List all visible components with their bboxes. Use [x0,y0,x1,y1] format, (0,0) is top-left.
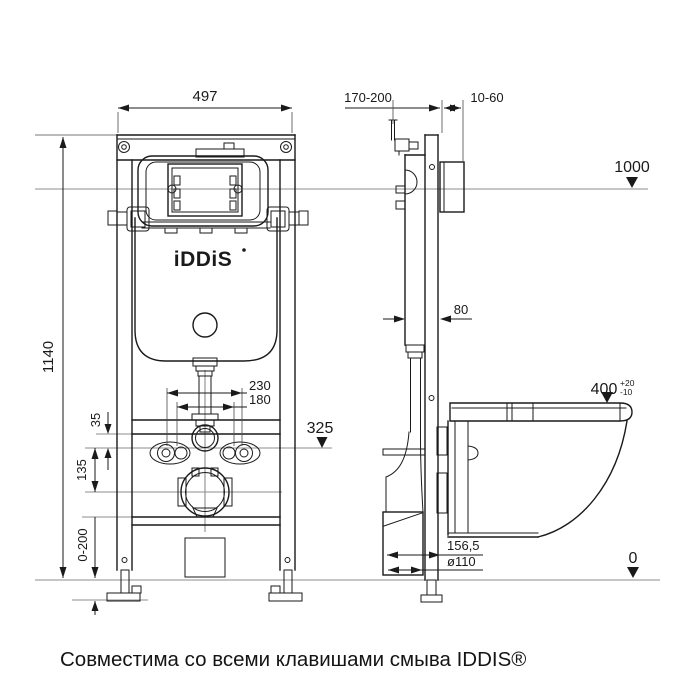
dim-profile-depth: 80 [383,302,472,323]
dim-drain-pipe-diameter: ø110 [388,554,483,574]
front-view: iDDiS [107,135,308,601]
toilet-bowl [448,403,632,537]
dim-bolt-spacing: 230 180 [167,378,271,446]
svg-text:35: 35 [88,413,103,427]
svg-text:-10: -10 [620,387,633,397]
svg-text:1140: 1140 [40,341,57,373]
dim-floor-level: 0 [627,550,639,578]
svg-text:0: 0 [629,550,638,567]
svg-text:497: 497 [192,88,217,105]
svg-text:135: 135 [74,459,89,481]
dim-front-width: 497 [118,88,292,133]
svg-text:0-200: 0-200 [75,528,90,561]
svg-text:156,5: 156,5 [447,538,480,553]
product-installation-diagram: iDDiS [0,0,700,700]
iddis-logo: iDDiS [174,248,233,271]
dimensions: 497 1140 230 180 [35,88,650,615]
technical-drawing: iDDiS [0,0,700,700]
svg-text:230: 230 [249,378,271,393]
side-cistern [396,155,435,438]
dim-depth-adjust: 170-200 [344,90,440,124]
side-view [383,120,632,602]
svg-text:ø110: ø110 [447,554,476,569]
svg-text:1000: 1000 [614,159,650,176]
flush-actuator-button [193,313,217,337]
flush-plate-housing [440,162,464,212]
dim-drain-offset: 135 [74,448,99,492]
dim-bracket-offset: 35 [88,412,112,470]
dim-front-height: 1140 [35,135,117,578]
dim-bowl-height: 400 +20 -10 [591,378,635,403]
cistern-tank [135,218,277,361]
dim-top-level: 1000 [614,159,650,188]
bottom-opening [185,538,225,577]
water-inlet-valve [389,120,418,155]
svg-text:10-60: 10-60 [470,90,503,105]
drain-elbow [383,432,423,575]
dim-plate-depth: 10-60 [442,90,504,161]
caption-text: Совместима со всеми клавишами смыва IDDI… [60,648,526,671]
dim-outlet-level: 325 [307,420,334,448]
support-bracket [383,449,425,455]
svg-text:325: 325 [307,420,334,437]
access-window [108,143,308,233]
reference-lines [35,189,660,600]
logo-trademark-dot [242,248,246,252]
front-feet [107,570,302,601]
svg-text:80: 80 [454,302,468,317]
side-frame-rail [421,135,442,602]
svg-text:170-200: 170-200 [344,90,392,105]
svg-text:180: 180 [249,392,271,407]
